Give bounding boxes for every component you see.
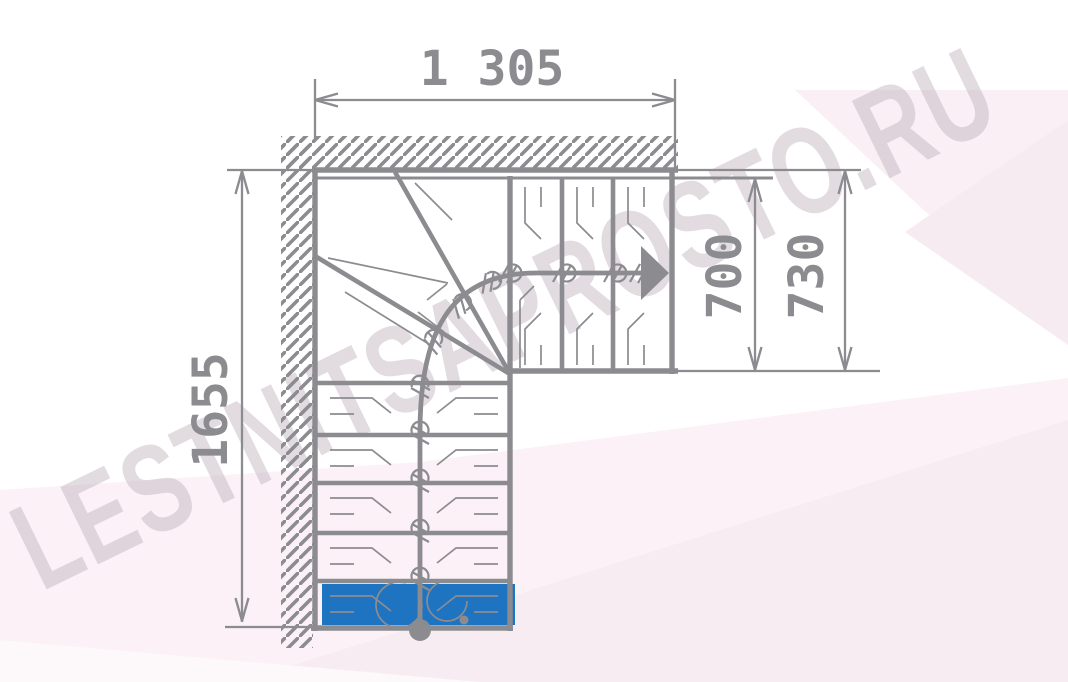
dim-label-flight-inner: 700 — [697, 233, 753, 320]
first-step-dot-marker — [460, 616, 469, 625]
dim-label-flight-outer: 730 — [779, 233, 835, 320]
hidden-tread-detail-lines — [328, 183, 644, 612]
stair-outline — [311, 168, 678, 631]
winder-tread-lines — [315, 172, 510, 374]
walk-start-marker — [409, 619, 431, 641]
walk-line — [420, 273, 641, 622]
wall-hatch-left — [281, 136, 313, 648]
staircase-plan-screenshot: LESTNITSAPROSTO.RU — [0, 0, 1068, 682]
staircase-plan-drawing: 1 305 1655 700 730 — [0, 0, 1068, 682]
dim-label-top-width: 1 305 — [420, 41, 565, 97]
wall-hatch-top — [281, 136, 678, 170]
walk-direction-arrow-icon — [641, 246, 669, 300]
dim-label-left-height: 1655 — [183, 352, 239, 468]
